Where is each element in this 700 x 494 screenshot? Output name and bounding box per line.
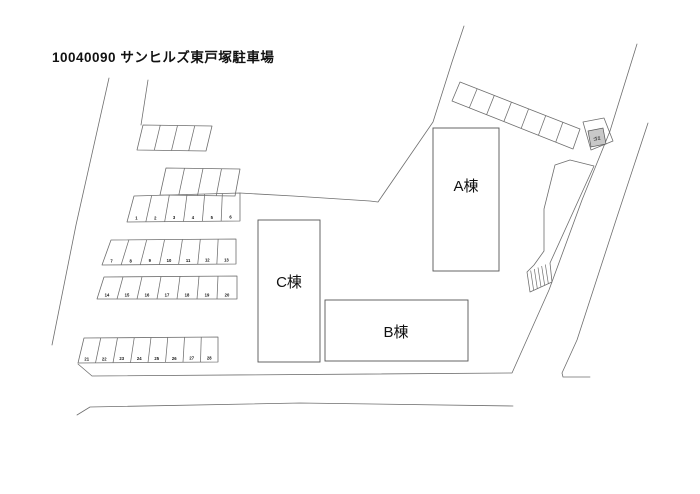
space-number: 19 — [205, 293, 210, 298]
space-number: 18 — [185, 293, 190, 298]
building-a-outline — [433, 128, 499, 271]
space-number: 15 — [125, 293, 130, 298]
building-a-label: A棟 — [453, 178, 478, 195]
space-number: 27 — [189, 356, 194, 361]
space-number: 16 — [145, 293, 150, 298]
site-plan: ゴミ A棟 B棟 C棟 1234567891011121314151617181… — [0, 0, 700, 494]
space-number: 11 — [186, 258, 191, 263]
space-number: 23 — [119, 356, 124, 361]
space-number: 10 — [167, 258, 172, 263]
building-c: C棟 — [258, 220, 320, 362]
space-number: 17 — [165, 293, 170, 298]
building-c-label: C棟 — [276, 274, 302, 291]
space-number: 26 — [172, 356, 177, 361]
space-number: 28 — [207, 356, 212, 361]
page-title: 10040090 サンヒルズ東戸塚駐車場 — [52, 49, 274, 65]
space-number: 12 — [205, 258, 210, 263]
building-b: B棟 — [325, 300, 468, 361]
space-number: 21 — [84, 356, 89, 361]
space-number: 20 — [225, 293, 230, 298]
plan-background — [0, 0, 700, 494]
building-b-label: B棟 — [383, 324, 408, 341]
space-number: 25 — [154, 356, 159, 361]
space-number: 14 — [105, 293, 110, 298]
space-number: 13 — [224, 258, 229, 263]
space-number: 22 — [102, 356, 107, 361]
space-number: 24 — [137, 356, 142, 361]
building-a: A棟 — [433, 128, 499, 271]
building-c-outline — [258, 220, 320, 362]
